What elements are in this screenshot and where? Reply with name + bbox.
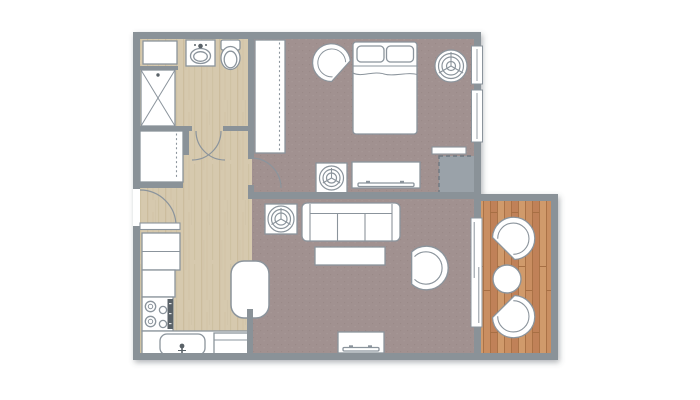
balcony-sliding-door	[471, 218, 482, 327]
wall-segment	[248, 185, 254, 192]
wall-segment	[247, 309, 253, 353]
floor-plan-page	[0, 0, 700, 400]
utility-closet-door	[432, 147, 466, 154]
wall-segment	[140, 66, 178, 70]
sofa	[302, 203, 400, 241]
fridge	[142, 233, 180, 270]
bedroom-wardrobe	[255, 40, 285, 153]
bedroom-dresser-tv	[352, 162, 420, 188]
hallway-closet	[140, 131, 183, 182]
bedroom-window-2	[472, 90, 483, 142]
wall-segment	[551, 194, 558, 360]
living-room-plant	[265, 204, 297, 234]
floor-plan	[0, 0, 700, 400]
kitchen-counter	[142, 270, 175, 297]
wall-segment	[223, 126, 254, 131]
wall-segment	[133, 226, 140, 360]
armchair	[412, 246, 449, 290]
bathroom-cabinet	[143, 41, 177, 64]
bathroom-sink-vanity	[186, 40, 215, 66]
wall-segment	[248, 32, 254, 159]
wall-segment	[481, 194, 558, 201]
wall-segment	[183, 126, 189, 155]
wall-segment	[133, 32, 140, 189]
stove	[142, 297, 173, 331]
dishwasher	[214, 333, 248, 354]
living-room-tv-console	[338, 332, 384, 353]
bedroom-window-1	[472, 46, 483, 84]
wall-segment	[248, 192, 474, 199]
bedroom-plant-large	[435, 50, 467, 82]
bed	[353, 42, 417, 134]
coffee-table	[315, 247, 385, 265]
shower	[141, 70, 175, 126]
utility-closet	[439, 156, 477, 193]
wall-segment	[133, 32, 481, 39]
wall-segment	[133, 353, 558, 360]
bedroom-plant-small	[316, 163, 347, 193]
toilet	[221, 40, 240, 70]
wall-segment	[133, 182, 183, 188]
balcony-table	[493, 265, 521, 293]
